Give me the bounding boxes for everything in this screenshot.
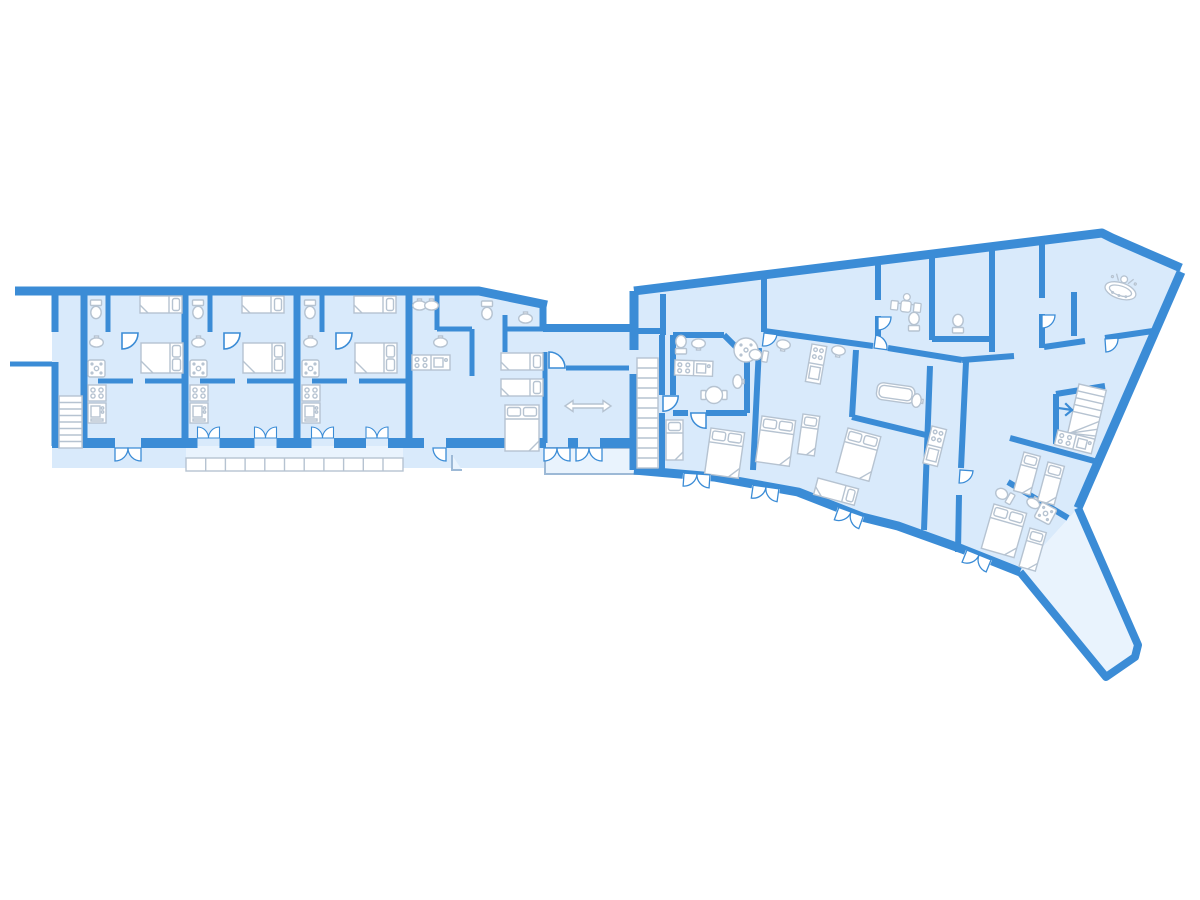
toilet-icon: [953, 314, 964, 333]
single-bed-icon: [242, 296, 284, 313]
shower-icon: [88, 360, 105, 377]
kitchen-sink-icon: [88, 403, 106, 423]
double-bed-icon: [756, 416, 796, 466]
single-bed-icon: [140, 296, 182, 313]
kitchen-sink-icon: [302, 403, 320, 423]
kitchen-sink-icon: [190, 403, 208, 423]
toilet-icon: [909, 312, 920, 331]
kitchen-counter-icon: [412, 355, 450, 370]
kitchen-counter-icon: [674, 360, 713, 376]
shower-icon: [190, 360, 207, 377]
single-bed-icon: [666, 420, 683, 460]
stove-icon: [88, 385, 106, 401]
terrace-railing: [186, 458, 403, 471]
floor-plan-canvas: [0, 0, 1200, 900]
stove-icon: [190, 385, 208, 401]
double-bed-icon: [505, 405, 539, 451]
toilet-icon: [193, 300, 204, 319]
building-fills: [52, 233, 1181, 677]
toilet-icon: [305, 300, 316, 319]
long-staircase-icon: [637, 358, 658, 468]
toilet-icon: [482, 301, 493, 320]
single-bed-icon: [501, 379, 543, 396]
double-bed-icon: [355, 343, 397, 373]
single-bed-icon: [354, 296, 396, 313]
toilet-icon: [91, 300, 102, 319]
exterior-staircase-icon: [59, 396, 82, 448]
terrace-double-door-icon: [682, 473, 711, 488]
single-bed-icon: [501, 353, 543, 370]
floor-plan: [0, 0, 1200, 900]
shower-icon: [302, 360, 319, 377]
double-bed-icon: [705, 428, 745, 478]
double-bed-icon: [243, 343, 285, 373]
double-bed-icon: [141, 343, 183, 373]
stove-icon: [302, 385, 320, 401]
toilet-icon: [676, 335, 687, 354]
